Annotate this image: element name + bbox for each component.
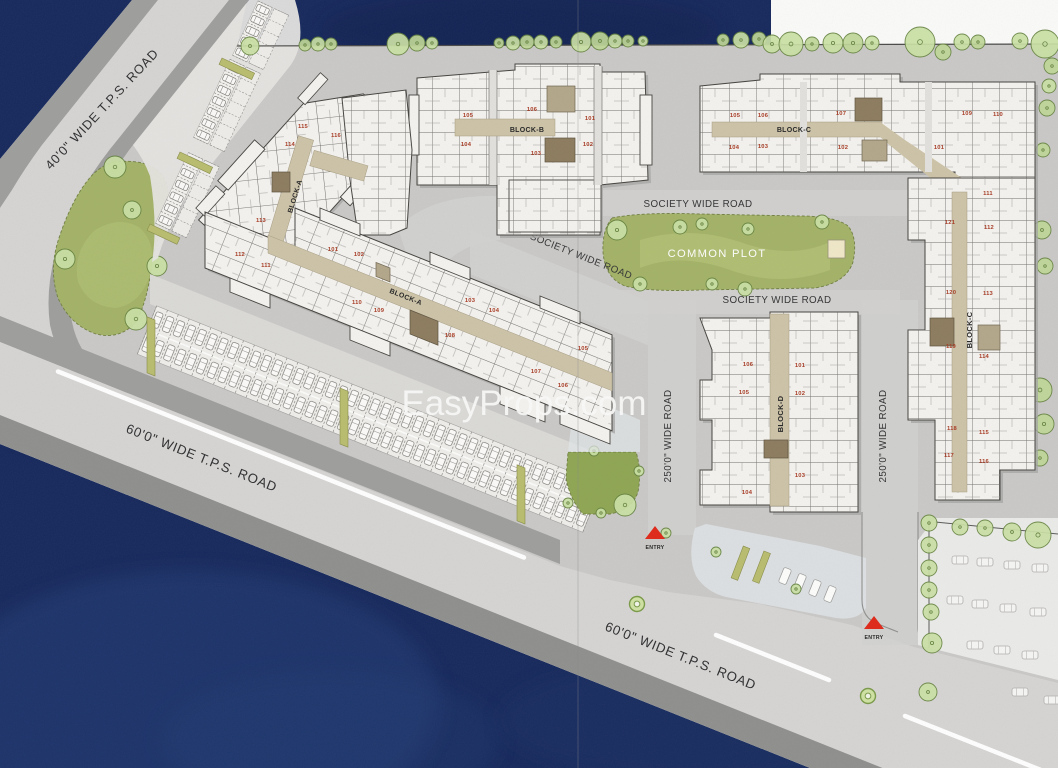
svg-text:108: 108 [445,333,456,339]
svg-text:114: 114 [285,142,296,148]
svg-text:104: 104 [729,145,740,151]
svg-text:105: 105 [730,113,741,119]
svg-text:BLOCK-D: BLOCK-D [776,395,785,432]
svg-text:106: 106 [758,113,769,119]
svg-text:ENTRY: ENTRY [865,635,884,641]
svg-text:105: 105 [578,346,589,352]
svg-text:104: 104 [742,490,753,496]
svg-text:103: 103 [531,151,542,157]
svg-text:110: 110 [993,112,1003,118]
svg-text:116: 116 [331,133,342,139]
svg-text:111: 111 [261,263,271,269]
svg-text:112: 112 [984,225,994,231]
svg-text:107: 107 [836,111,846,117]
svg-text:103: 103 [465,298,476,304]
svg-text:115: 115 [979,430,990,436]
svg-text:EasyProps.com: EasyProps.com [401,384,646,423]
svg-text:BLOCK-C: BLOCK-C [777,127,811,134]
svg-text:117: 117 [944,453,954,459]
svg-text:119: 119 [946,344,957,350]
svg-text:COMMON PLOT: COMMON PLOT [668,248,767,260]
svg-text:114: 114 [979,354,990,360]
svg-text:103: 103 [795,473,806,479]
svg-text:BLOCK-B: BLOCK-B [510,127,544,134]
svg-text:SOCIETY WIDE ROAD: SOCIETY WIDE ROAD [723,295,832,306]
svg-text:250'0" WIDE ROAD: 250'0" WIDE ROAD [878,390,889,483]
svg-text:115: 115 [298,124,309,130]
svg-text:121: 121 [945,220,956,226]
svg-text:104: 104 [461,142,472,148]
svg-text:116: 116 [979,459,990,465]
svg-text:106: 106 [527,107,538,113]
svg-text:102: 102 [838,145,848,151]
svg-text:118: 118 [947,426,958,432]
svg-text:250'0" WIDE ROAD: 250'0" WIDE ROAD [663,390,674,483]
svg-text:113: 113 [983,291,994,297]
svg-text:113: 113 [256,218,267,224]
svg-text:104: 104 [489,308,500,314]
svg-text:105: 105 [463,113,474,119]
svg-text:101: 101 [934,145,945,151]
svg-text:BLOCK-C: BLOCK-C [965,311,974,348]
svg-text:111: 111 [983,191,993,197]
svg-text:ENTRY: ENTRY [646,545,665,551]
svg-text:101: 101 [795,363,806,369]
svg-text:106: 106 [743,362,754,368]
svg-text:112: 112 [235,252,245,258]
svg-text:110: 110 [352,300,362,306]
svg-text:102: 102 [354,252,364,258]
svg-text:107: 107 [531,369,541,375]
svg-text:109: 109 [962,111,973,117]
svg-text:120: 120 [946,290,956,296]
svg-text:109: 109 [374,308,385,314]
svg-text:101: 101 [328,247,339,253]
svg-text:102: 102 [795,391,805,397]
svg-text:103: 103 [758,144,769,150]
svg-text:105: 105 [739,390,750,396]
svg-text:101: 101 [585,116,596,122]
svg-text:SOCIETY WIDE ROAD: SOCIETY WIDE ROAD [644,199,753,210]
svg-text:102: 102 [583,142,593,148]
